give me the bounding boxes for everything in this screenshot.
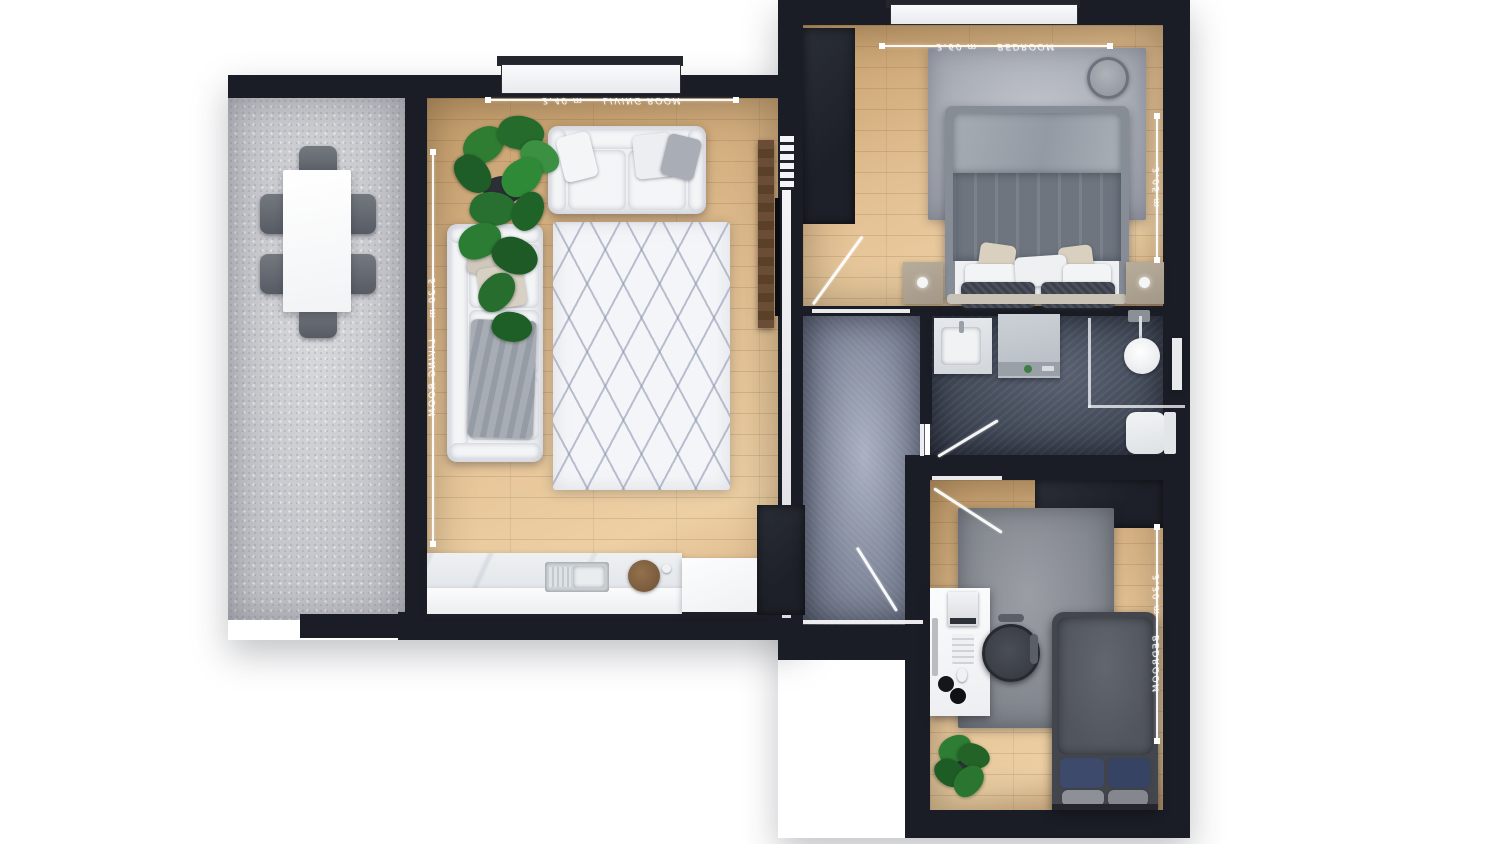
bed-blanket-fold <box>953 113 1121 173</box>
wall-terrace-bottom <box>300 614 405 638</box>
mouse <box>957 668 967 682</box>
floorplan-canvas: 3.40 m — LIVING ROOM 5.20 m — LIVING ROO… <box>0 0 1500 844</box>
living-wardrobe <box>757 505 805 615</box>
washing-machine <box>998 314 1060 378</box>
threshold-bedroom-second <box>932 476 1002 480</box>
dimension-line-bedroom-second-right: 3.30 m — BEDROOM <box>1156 527 1158 741</box>
dimension-label: 3.40 m — LIVING ROOM <box>542 95 682 105</box>
printer <box>948 592 978 626</box>
toilet <box>1126 412 1166 454</box>
toilet-tank <box>1164 412 1176 454</box>
wall-clock <box>1087 57 1129 99</box>
double-bed <box>945 106 1129 304</box>
bathroom-shelf <box>1172 338 1182 390</box>
chair-armrest <box>1030 634 1038 664</box>
loveseat-sofa <box>548 126 706 214</box>
sink-vanity <box>934 318 992 374</box>
dimension-line-bedroom-main-right: 3.05 m <box>1156 116 1158 260</box>
washer-knob <box>1024 365 1032 373</box>
sink-drainboard <box>549 567 571 587</box>
wall-entry-bottom <box>778 625 930 660</box>
headphones <box>950 688 966 704</box>
dimension-line-bedroom-main-top: 3.60 m — BEDROOM <box>882 45 1110 47</box>
living-window-sill <box>501 64 681 94</box>
soap-bottle <box>662 564 671 573</box>
bed-blanket-tufted <box>953 173 1121 261</box>
monitor <box>932 618 938 676</box>
single-bed <box>1052 612 1158 810</box>
bedroom-main-wardrobe <box>803 28 855 224</box>
threshold-entry <box>803 620 923 624</box>
kitchen-sink <box>545 562 609 592</box>
chair-armrest <box>998 614 1024 622</box>
threshold-bedroom-main <box>812 309 910 313</box>
shower-glass-vertical <box>1088 318 1091 408</box>
washer-detail <box>1042 366 1054 371</box>
keyboard <box>952 634 974 664</box>
sofa-back <box>450 228 468 458</box>
kitchen-island <box>682 558 768 612</box>
dining-table <box>283 170 351 312</box>
bedroom-window-sill <box>890 4 1078 25</box>
bed2-frame-end <box>1052 804 1158 810</box>
bed2-pillow-blue <box>1108 758 1150 788</box>
wall-bathroom-left-upper <box>920 316 932 424</box>
tv <box>775 198 780 316</box>
living-rug <box>553 222 730 490</box>
threshold-bathroom <box>920 424 924 456</box>
dimension-label: 3.60 m — BEDROOM <box>937 41 1056 51</box>
bed2-blanket <box>1057 617 1153 755</box>
wall-living-bottom <box>398 612 803 640</box>
table-lamp <box>1139 277 1150 288</box>
wall-bedroom2-bottom <box>905 810 1190 838</box>
nightstand <box>903 262 943 304</box>
cutting-board <box>628 560 660 592</box>
dimension-line-living-left: 5.20 m — LIVING ROOM <box>432 152 434 544</box>
sofa-armrest <box>450 443 540 459</box>
sink-basin <box>573 566 605 588</box>
shower-glass-horizontal <box>1088 405 1185 408</box>
dimension-line-living-top: 3.40 m — LIVING ROOM <box>488 99 736 101</box>
bed2-pillow-blue <box>1060 758 1104 788</box>
printer-tray <box>950 618 976 624</box>
radiator <box>780 136 794 190</box>
nightstand <box>1126 262 1164 304</box>
tv-sideboard <box>758 140 774 328</box>
faucet <box>959 321 964 333</box>
table-lamp <box>917 277 928 288</box>
shower-head <box>1124 338 1160 374</box>
dimension-label: 5.20 m — LIVING ROOM <box>428 278 438 418</box>
dimension-label: 3.30 m — BEDROOM <box>1152 575 1162 694</box>
dimension-label: 3.05 m <box>1152 167 1162 208</box>
wall-living-left <box>405 75 427 638</box>
bed-footboard <box>947 294 1127 304</box>
